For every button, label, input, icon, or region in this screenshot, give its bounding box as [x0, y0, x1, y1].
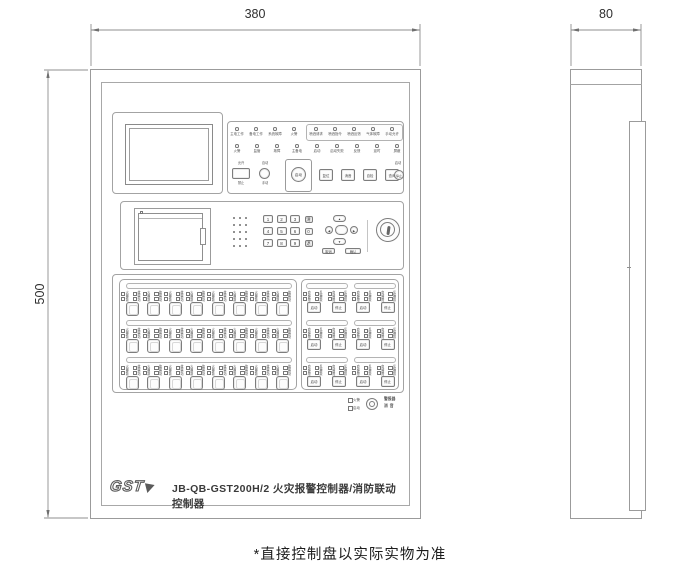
- sounder-start-indicator-label: 启动: [353, 407, 360, 411]
- zone-led-line: 故障屏蔽: [352, 297, 374, 301]
- device-led-label: 屏蔽: [344, 333, 349, 339]
- device-led-label: 屏蔽: [344, 296, 349, 302]
- zone-led-line: 屏蔽启动: [207, 371, 229, 375]
- keypad-key[interactable]: 清: [305, 216, 313, 223]
- zone-button[interactable]: [169, 376, 182, 390]
- device-led: [377, 371, 381, 376]
- zone-led: [240, 334, 244, 339]
- zone-led-line: 屏蔽启动: [186, 297, 208, 301]
- zone-led: [207, 371, 211, 376]
- zone-button-cap: [193, 379, 202, 389]
- arrow-down-key[interactable]: ▼: [333, 238, 346, 245]
- zone-led: [197, 371, 201, 376]
- zone-led: [207, 297, 211, 302]
- gst-logo: GST: [109, 478, 145, 495]
- zone-led-line: 故障屏蔽: [377, 297, 399, 301]
- keyboard-lock-button[interactable]: [232, 168, 250, 179]
- function-button[interactable]: 消音: [341, 169, 355, 181]
- device-led-label: 屏蔽: [393, 333, 398, 339]
- zone-led: [219, 329, 223, 334]
- zone-led-line: 屏蔽启动: [272, 371, 294, 375]
- device-led: [303, 329, 307, 334]
- zone-button[interactable]: [212, 339, 225, 353]
- device-led: [352, 329, 356, 334]
- zone-led: [207, 292, 211, 297]
- status-indicator-led: [254, 127, 258, 131]
- start-button[interactable]: 启动: [291, 167, 306, 182]
- zone-button[interactable]: [276, 302, 289, 316]
- status-indicator-label: 屏蔽: [385, 150, 409, 153]
- zone-led: [121, 329, 125, 334]
- zone-led: [154, 297, 158, 302]
- zone-led: [250, 292, 254, 297]
- zone-led: [272, 334, 276, 339]
- zone-led: [121, 371, 125, 376]
- zone-led: [186, 329, 190, 334]
- device-led-label: 屏蔽: [393, 296, 398, 302]
- device-led-label: 屏蔽: [344, 370, 349, 376]
- device-control-button[interactable]: 启动: [356, 376, 370, 387]
- zone-led: [164, 297, 168, 302]
- keypad-key[interactable]: 8: [277, 239, 287, 247]
- zone-button[interactable]: [126, 302, 139, 316]
- device-led: [315, 297, 319, 302]
- sounder-silence-button[interactable]: [366, 398, 378, 410]
- zone-led: [176, 334, 180, 339]
- zone-led: [154, 329, 158, 334]
- device-led: [364, 334, 368, 339]
- zone-button-cap: [258, 305, 267, 315]
- speaker-hole-icon: [245, 231, 247, 233]
- zone-led-line: 屏蔽启动: [229, 371, 251, 375]
- speaker-hole-icon: [239, 217, 241, 219]
- zone-led: [143, 371, 147, 376]
- speaker-hole-icon: [239, 238, 241, 240]
- zone-led: [229, 366, 233, 371]
- zone-led: [262, 329, 266, 334]
- zone-led-label: 启动: [288, 333, 293, 339]
- zone-led-line: 屏蔽启动: [229, 334, 251, 338]
- sounder-fire-indicator-led: [348, 398, 353, 403]
- zone-button[interactable]: [233, 376, 246, 390]
- zone-led: [186, 292, 190, 297]
- device-control-button[interactable]: 停止: [381, 302, 395, 313]
- zone-label-strip: [354, 320, 396, 326]
- status-indicator-led: [390, 127, 394, 131]
- zone-led-line: 故障屏蔽: [328, 371, 350, 375]
- zone-button[interactable]: [147, 302, 160, 316]
- keypad-key[interactable]: 5: [277, 227, 287, 235]
- zone-led: [229, 292, 233, 297]
- status-indicator-led: [395, 144, 399, 148]
- device-led-label: 屏蔽: [320, 370, 325, 376]
- stop-led-label: 启动: [386, 162, 410, 165]
- lcd-block: [112, 112, 223, 194]
- zone-led: [240, 297, 244, 302]
- zone-button[interactable]: [126, 376, 139, 390]
- status-indicator-led: [314, 127, 318, 131]
- zone-button[interactable]: [147, 339, 160, 353]
- printer-frame: [134, 208, 211, 265]
- device-led: [303, 366, 307, 371]
- device-led: [388, 329, 392, 334]
- zone-led: [121, 334, 125, 339]
- mode-round-button[interactable]: [259, 168, 270, 179]
- zone-button[interactable]: [190, 376, 203, 390]
- device-led: [364, 297, 368, 302]
- zone-led: [164, 292, 168, 297]
- zone-panel-left: 火警故障屏蔽启动火警故障屏蔽启动火警故障屏蔽启动火警故障屏蔽启动火警故障屏蔽启动…: [119, 279, 297, 390]
- device-led: [377, 334, 381, 339]
- status-indicator-led: [352, 127, 356, 131]
- zone-led: [250, 371, 254, 376]
- zone-led: [262, 297, 266, 302]
- zone-led: [121, 366, 125, 371]
- device-led: [303, 371, 307, 376]
- zone-led: [176, 366, 180, 371]
- zone-label-strip: [126, 357, 292, 363]
- device-led: [388, 292, 392, 297]
- zone-led: [272, 292, 276, 297]
- function-button[interactable]: 自检: [363, 169, 377, 181]
- zone-button[interactable]: [126, 339, 139, 353]
- function-button[interactable]: 复位: [319, 169, 333, 181]
- zone-led: [250, 366, 254, 371]
- device-led: [315, 334, 319, 339]
- zone-led: [262, 371, 266, 376]
- status-indicator-label: 手动允许: [380, 133, 404, 136]
- zone-button-cap: [279, 342, 288, 352]
- zone-led: [197, 297, 201, 302]
- dimension-height-label: 500: [33, 269, 47, 319]
- zone-led: [250, 297, 254, 302]
- confirm-key[interactable]: 确认: [345, 248, 361, 254]
- zone-label-strip: [354, 357, 396, 363]
- zone-led: [219, 297, 223, 302]
- zone-led-line: 故障屏蔽: [303, 371, 325, 375]
- arrow-right-key[interactable]: ▶: [350, 226, 358, 234]
- enter-key[interactable]: [335, 225, 348, 235]
- device-control-button[interactable]: 启动: [307, 302, 321, 313]
- zone-led: [121, 297, 125, 302]
- sounder-fire-indicator-label: 火警: [353, 399, 360, 403]
- status-indicator-led: [255, 144, 259, 148]
- zone-led: [240, 371, 244, 376]
- zone-led: [154, 366, 158, 371]
- speaker-hole-icon: [233, 217, 235, 219]
- zone-panel-right: 启动反馈故障屏蔽启动启动反馈故障屏蔽停止启动反馈故障屏蔽启动启动反馈故障屏蔽停止…: [301, 279, 399, 390]
- zone-button[interactable]: [276, 376, 289, 390]
- zone-led: [219, 292, 223, 297]
- zone-led-line: 屏蔽启动: [207, 334, 229, 338]
- zone-led-line: 故障屏蔽: [352, 334, 374, 338]
- zone-led-line: 故障屏蔽: [328, 297, 350, 301]
- sounder-label-line1: 警报器: [384, 398, 395, 402]
- dimension-width-label: 380: [230, 7, 280, 21]
- zone-button[interactable]: [169, 339, 182, 353]
- stop-round-button[interactable]: 停止: [394, 170, 404, 180]
- zone-led: [272, 297, 276, 302]
- device-led: [328, 334, 332, 339]
- arrow-left-key[interactable]: ◀: [325, 226, 333, 234]
- zone-led: [164, 366, 168, 371]
- speaker-hole-icon: [239, 224, 241, 226]
- zone-led: [133, 292, 137, 297]
- zone-led: [133, 366, 137, 371]
- device-led: [377, 329, 381, 334]
- device-led: [388, 371, 392, 376]
- zone-led: [283, 371, 287, 376]
- keyhole-icon: [386, 225, 390, 234]
- speaker-hole-icon: [233, 245, 235, 247]
- device-led: [388, 297, 392, 302]
- keypad-key[interactable]: 2: [277, 215, 287, 223]
- device-led: [364, 371, 368, 376]
- device-control-button[interactable]: 停止: [381, 339, 395, 350]
- zone-led: [133, 329, 137, 334]
- status-indicator-led: [375, 144, 379, 148]
- zone-led: [283, 329, 287, 334]
- printer-door[interactable]: [138, 213, 203, 261]
- status-indicator-led: [235, 144, 239, 148]
- zone-led: [219, 366, 223, 371]
- zone-button[interactable]: [147, 376, 160, 390]
- cancel-key[interactable]: 取消: [322, 248, 335, 254]
- zone-led: [207, 334, 211, 339]
- zone-button-cap: [172, 342, 181, 352]
- zone-led: [207, 329, 211, 334]
- device-led: [388, 334, 392, 339]
- zone-button-cap: [129, 342, 138, 352]
- device-led: [388, 366, 392, 371]
- zone-button-cap: [172, 305, 181, 315]
- status-indicator-led: [335, 144, 339, 148]
- device-led: [352, 371, 356, 376]
- zone-button[interactable]: [233, 339, 246, 353]
- zone-button[interactable]: [255, 376, 268, 390]
- device-control-button[interactable]: 停止: [332, 339, 346, 350]
- zone-led: [164, 329, 168, 334]
- device-led: [352, 366, 356, 371]
- device-control-button[interactable]: 启动: [356, 302, 370, 313]
- zone-button[interactable]: [255, 302, 268, 316]
- zone-led-line: 屏蔽启动: [143, 334, 165, 338]
- zone-led-line: 屏蔽启动: [121, 371, 143, 375]
- zone-button-cap: [279, 305, 288, 315]
- device-led: [339, 297, 343, 302]
- zone-led: [154, 334, 158, 339]
- zone-led: [133, 334, 137, 339]
- zone-led-line: 故障屏蔽: [377, 371, 399, 375]
- status-indicator-led: [355, 144, 359, 148]
- zone-button[interactable]: [190, 339, 203, 353]
- sounder-label-line2: 消音: [384, 405, 396, 409]
- zone-led-line: 屏蔽启动: [272, 334, 294, 338]
- zone-led: [176, 329, 180, 334]
- device-led: [339, 292, 343, 297]
- device-led: [377, 297, 381, 302]
- device-led: [328, 329, 332, 334]
- zone-button-cap: [258, 379, 267, 389]
- keypad-key[interactable]: 0: [305, 228, 313, 235]
- zone-led-line: 屏蔽启动: [143, 371, 165, 375]
- zone-led: [272, 329, 276, 334]
- device-led: [377, 366, 381, 371]
- zone-led-line: 屏蔽启动: [186, 334, 208, 338]
- printer-latch[interactable]: [200, 228, 206, 245]
- status-indicator-led: [275, 144, 279, 148]
- device-led: [315, 371, 319, 376]
- control-block: 主电工作备电工作系统故障火警喷洒请求喷洒指令喷洒反馈气体故障手动允许火警监管故障…: [227, 121, 404, 194]
- keypad-key[interactable]: 7: [263, 239, 273, 247]
- zone-led: [229, 334, 233, 339]
- zone-led-line: 屏蔽启动: [229, 297, 251, 301]
- zone-button-cap: [236, 342, 245, 352]
- device-led: [328, 371, 332, 376]
- printer-door-foldline: [139, 218, 202, 219]
- status-indicator-led: [371, 127, 375, 131]
- zone-led-line: 屏蔽启动: [121, 334, 143, 338]
- key-switch[interactable]: [376, 218, 400, 242]
- lcd-frame: [125, 124, 213, 185]
- speaker-hole-icon: [245, 217, 247, 219]
- zone-label-strip: [306, 357, 348, 363]
- device-led: [339, 334, 343, 339]
- speaker-hole-icon: [239, 231, 241, 233]
- zone-button-cap: [193, 342, 202, 352]
- zone-led: [262, 366, 266, 371]
- drawing-canvas: 380 80 500 主电工作备电工作系统故障火警喷洒请求喷洒指令喷洒反馈气体故…: [0, 0, 693, 572]
- device-control-button[interactable]: 停止: [332, 302, 346, 313]
- device-led: [328, 297, 332, 302]
- device-led: [303, 334, 307, 339]
- operation-block: 123清4560789退▲◀▶▼取消确认: [120, 201, 404, 270]
- keypad-key[interactable]: 9: [290, 239, 300, 247]
- zone-led: [240, 329, 244, 334]
- lock-led-top-label: 允许: [229, 162, 253, 165]
- zone-button[interactable]: [190, 302, 203, 316]
- zone-led-line: 故障屏蔽: [377, 334, 399, 338]
- zone-led: [186, 297, 190, 302]
- zone-led-line: 屏蔽启动: [164, 297, 186, 301]
- keypad-key[interactable]: 1: [263, 215, 273, 223]
- device-led-label: 屏蔽: [369, 333, 374, 339]
- side-view-door[interactable]: [629, 121, 646, 511]
- zone-led-line: 故障屏蔽: [303, 334, 325, 338]
- zone-led: [143, 329, 147, 334]
- zone-led: [176, 297, 180, 302]
- zone-led: [219, 371, 223, 376]
- zone-led: [229, 371, 233, 376]
- status-indicator-led: [292, 127, 296, 131]
- zone-led: [262, 334, 266, 339]
- lcd-screen: [129, 128, 209, 181]
- status-indicator-led: [273, 127, 277, 131]
- arrow-up-key[interactable]: ▲: [333, 215, 346, 222]
- device-led: [364, 329, 368, 334]
- zone-led: [176, 371, 180, 376]
- zone-led-line: 屏蔽启动: [186, 371, 208, 375]
- zone-led-line: 屏蔽启动: [272, 297, 294, 301]
- zone-led: [186, 371, 190, 376]
- zone-button[interactable]: [276, 339, 289, 353]
- zone-led-label: 启动: [288, 296, 293, 302]
- footnote: *直接控制盘以实际实物为准: [200, 543, 500, 564]
- zone-led: [240, 366, 244, 371]
- device-led: [339, 366, 343, 371]
- sounder-start-indicator-led: [348, 406, 353, 411]
- zone-led: [262, 292, 266, 297]
- device-control-button[interactable]: 启动: [307, 376, 321, 387]
- device-control-button[interactable]: 启动: [307, 339, 321, 350]
- device-control-button[interactable]: 停止: [381, 376, 395, 387]
- device-led: [315, 329, 319, 334]
- speaker-hole-icon: [245, 238, 247, 240]
- zone-led: [133, 371, 137, 376]
- keypad-key[interactable]: 4: [263, 227, 273, 235]
- zone-led: [186, 334, 190, 339]
- zone-led-line: 屏蔽启动: [121, 297, 143, 301]
- zone-button-cap: [172, 379, 181, 389]
- zone-button[interactable]: [255, 339, 268, 353]
- keypad-key[interactable]: 3: [290, 215, 300, 223]
- zone-label-strip: [126, 283, 292, 289]
- zone-label-strip: [354, 283, 396, 289]
- zone-led: [219, 334, 223, 339]
- zone-led: [164, 334, 168, 339]
- keypad-key[interactable]: 退: [305, 240, 313, 247]
- device-led: [339, 371, 343, 376]
- zone-button[interactable]: [212, 302, 225, 316]
- zone-button-cap: [279, 379, 288, 389]
- zone-led-line: 屏蔽启动: [207, 297, 229, 301]
- status-indicator-led: [333, 127, 337, 131]
- zone-button-cap: [129, 379, 138, 389]
- zone-label-strip: [306, 283, 348, 289]
- device-control-button[interactable]: 启动: [356, 339, 370, 350]
- zone-led: [154, 371, 158, 376]
- sounder-start-indicator: 启动: [348, 406, 360, 411]
- device-led: [352, 297, 356, 302]
- device-led: [303, 292, 307, 297]
- sounder-silence-button-inner: [369, 401, 375, 407]
- device-control-button[interactable]: 停止: [332, 376, 346, 387]
- device-led: [315, 292, 319, 297]
- zone-led: [143, 292, 147, 297]
- zone-led-line: 屏蔽启动: [250, 334, 272, 338]
- zone-led: [272, 366, 276, 371]
- device-led-label: 屏蔽: [369, 296, 374, 302]
- device-led: [315, 366, 319, 371]
- dimension-depth-label: 80: [581, 7, 631, 21]
- zone-button-cap: [236, 379, 245, 389]
- device-led: [303, 297, 307, 302]
- device-led-label: 屏蔽: [320, 333, 325, 339]
- zone-button-cap: [258, 342, 267, 352]
- zone-button-cap: [215, 305, 224, 315]
- zone-led-line: 屏蔽启动: [250, 297, 272, 301]
- zone-led: [176, 292, 180, 297]
- keypad-key[interactable]: 6: [290, 227, 300, 235]
- device-led: [328, 292, 332, 297]
- zone-led: [272, 371, 276, 376]
- zone-button[interactable]: [233, 302, 246, 316]
- zone-button-cap: [150, 342, 159, 352]
- zone-button-cap: [236, 305, 245, 315]
- zone-button[interactable]: [169, 302, 182, 316]
- zone-button[interactable]: [212, 376, 225, 390]
- zone-led: [133, 297, 137, 302]
